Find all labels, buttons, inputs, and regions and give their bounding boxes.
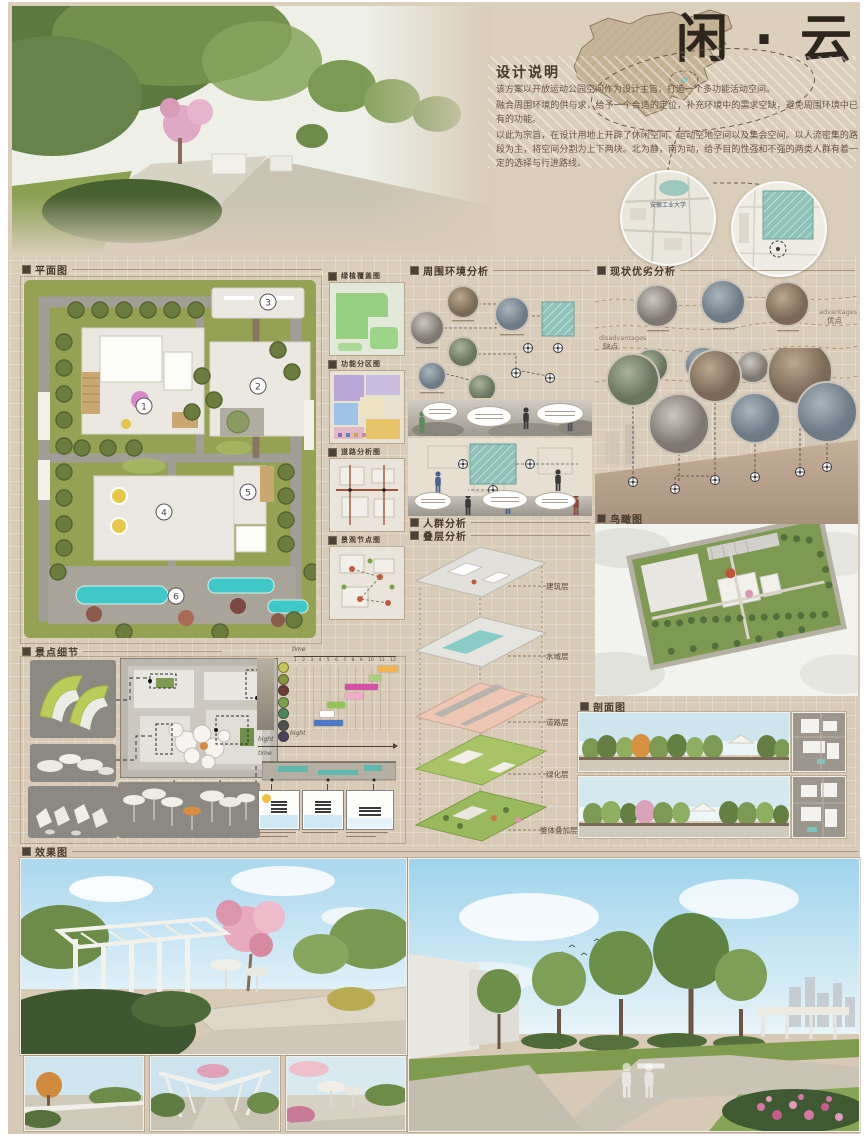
planting-photo-strip (257, 658, 274, 730)
mini-map-landscape-nodes (329, 546, 405, 620)
detail-umbrella-render (118, 782, 260, 838)
layer-green (416, 735, 546, 785)
section-header-crowd: 人群分析 (410, 516, 590, 528)
section-elevation-1 (578, 712, 790, 772)
time-tick: 12 (390, 658, 396, 663)
tree-species-dot (278, 708, 289, 719)
speech-bubble (422, 402, 458, 421)
site-square (542, 302, 574, 336)
render-pergola-scene (20, 858, 407, 1055)
caption-line (302, 832, 338, 833)
layer-label: 道路层 (546, 717, 569, 728)
svg-text:3: 3 (265, 299, 271, 309)
section-bullet-icon (328, 360, 337, 369)
section-rule (471, 535, 590, 536)
caption-line (346, 832, 388, 833)
section-bullet-icon (328, 448, 337, 457)
campus-map-drawing (622, 172, 714, 264)
tree-species-dot (278, 674, 289, 685)
tree-species-dot (278, 720, 289, 731)
caption-line (346, 836, 376, 837)
time-tick: 9 (360, 658, 363, 663)
aerial-view (595, 524, 858, 696)
time-tick: 5 (327, 658, 330, 663)
section-elevation-2 (578, 776, 790, 838)
svg-text:disadvantages: disadvantages (599, 334, 647, 342)
design-poster: 闲 · 云 设计说明 该方案以开放运动公园空间作为设计主旨，打造一个多功能活动空… (0, 0, 867, 1136)
section-bullet-icon (580, 702, 589, 711)
section-header-aerial: 鸟瞰图 (597, 512, 717, 524)
section-bullet-icon (597, 514, 606, 523)
section-header-mini-1: 绿植覆盖图 (328, 270, 404, 282)
arrowhead-icon (393, 743, 398, 749)
section-header-profile: 剖面图 (580, 700, 730, 712)
section-rule (493, 270, 590, 271)
crowd-photo-strip-1 (408, 400, 592, 436)
gabion-stack (271, 799, 287, 815)
render-park-path-scene (408, 858, 860, 1132)
bloom-bar (369, 675, 382, 681)
speech-bubble (414, 492, 452, 510)
tree-species-dot (278, 731, 289, 742)
water-diagram-2 (302, 790, 344, 830)
section-bullet-icon (22, 265, 31, 274)
environment-analysis (408, 278, 592, 398)
section-bullet-icon (410, 518, 419, 527)
section-header-swot: 现状优劣分析 (597, 264, 855, 276)
bloom-bar (320, 711, 335, 717)
section-bullet-icon (410, 531, 419, 540)
speech-bubble (536, 403, 584, 424)
water-level (348, 818, 392, 828)
bloom-bar (378, 666, 398, 672)
caption-line (258, 832, 296, 833)
crowd-site-band (408, 438, 592, 496)
layer-buildings (416, 547, 546, 597)
svg-text:4: 4 (161, 509, 167, 519)
tree-species-dot (278, 662, 289, 673)
time-tick: 3 (310, 658, 313, 663)
site-map-circle (731, 181, 827, 277)
bloom-bar-chart (296, 666, 396, 730)
speech-bubble (534, 492, 576, 510)
site-area-highlight (763, 191, 813, 239)
sun-icon (262, 794, 271, 803)
water-diagram-3 (346, 790, 394, 830)
time-tick: 4 (319, 658, 322, 663)
tree-species-dot (278, 685, 289, 696)
time-axis-line (294, 656, 396, 657)
svg-text:2: 2 (255, 383, 261, 393)
caption-line (258, 836, 288, 837)
render-thumbnail-3 (286, 1056, 406, 1131)
section-header-mini-3: 道路分析图 (328, 446, 404, 458)
water-level (304, 815, 342, 828)
mini-map-title: 道路分析图 (341, 447, 381, 457)
time-axis-ticks: 123456789101112 (294, 658, 396, 663)
svg-text:1: 1 (141, 403, 147, 413)
mini-map-title: 景观节点图 (341, 535, 381, 545)
bloom-bar (327, 702, 345, 708)
tree-species-column (278, 662, 289, 743)
section-title: 周围环境分析 (423, 263, 489, 278)
water-diagram-1 (258, 790, 300, 830)
section-rule (471, 522, 590, 523)
speech-bubble (482, 490, 528, 509)
section-rule (680, 270, 855, 271)
height-label-2: hight (258, 736, 273, 743)
section-header-plan: 平面图 (22, 263, 322, 275)
section-title: 效果图 (35, 844, 68, 859)
layer-label: 整体叠加层 (540, 825, 578, 836)
site-square (470, 444, 516, 484)
time-tick: 7 (343, 658, 346, 663)
facility-elevation (262, 758, 396, 784)
render-thumbnail-2 (150, 1056, 280, 1131)
section-rule (72, 269, 322, 270)
section-bullet-icon (328, 536, 337, 545)
campus-map-label: 安徽工业大学 (622, 200, 714, 209)
time-tick: 11 (379, 658, 385, 663)
bloom-bar (314, 720, 343, 726)
svg-text:5: 5 (245, 489, 251, 499)
svg-text:优点: 优点 (827, 315, 842, 325)
time-tick: 8 (352, 658, 355, 663)
section-header-environment: 周围环境分析 (410, 264, 590, 276)
bloom-bar (345, 693, 363, 699)
section-header-renders: 效果图 (22, 845, 858, 857)
crowd-photo-strip-2 (408, 496, 592, 516)
mini-map-function-zones (329, 370, 405, 444)
bloom-bar (345, 684, 378, 690)
section-bullet-icon (22, 847, 31, 856)
time-tick: 10 (368, 658, 374, 663)
section-bullet-icon (410, 266, 419, 275)
section-bullet-icon (328, 272, 337, 281)
time-axis-label: time (292, 646, 306, 653)
site-map-drawing (733, 183, 825, 275)
section-key-plan-2 (792, 776, 846, 838)
section-title: 叠层分析 (423, 528, 467, 543)
height-axis-label: hight (290, 730, 305, 737)
gabion-stack (359, 805, 381, 817)
svg-text:advantages: advantages (819, 308, 858, 316)
street-condition-photos (595, 348, 858, 528)
mini-map-title: 功能分区图 (341, 359, 381, 369)
water-level (260, 815, 298, 828)
section-key-plan-1 (792, 712, 846, 772)
section-rule (72, 851, 858, 852)
render-thumbnail-1 (24, 1056, 144, 1131)
mini-map-green-coverage (329, 282, 405, 356)
layer-label: 建筑层 (546, 581, 569, 592)
time-label-2: time (258, 750, 272, 757)
time-tick: 2 (302, 658, 305, 663)
layer-label: 水域层 (546, 651, 569, 662)
campus-map-circle: 安徽工业大学 (620, 170, 716, 266)
section-header-layers: 叠层分析 (410, 529, 590, 541)
time-tick: 6 (335, 658, 338, 663)
section-header-mini-4: 景观节点图 (328, 534, 404, 546)
gabion-stack (315, 799, 331, 815)
mini-map-road-analysis (329, 458, 405, 532)
layer-label: 绿化层 (546, 769, 569, 780)
layer-composite (416, 791, 546, 841)
layer-roads (416, 683, 546, 733)
speech-bubble (466, 406, 512, 427)
description-heading: 设计说明 (496, 62, 560, 82)
site-plan: 1 2 3 4 5 6 (24, 280, 316, 638)
park-avenue-photo (12, 6, 492, 254)
time-tick: 1 (294, 658, 297, 663)
time-arrow-line (258, 746, 396, 747)
layer-water (416, 617, 546, 667)
section-header-mini-2: 功能分区图 (328, 358, 404, 370)
svg-text:6: 6 (173, 593, 179, 603)
tree-species-dot (278, 697, 289, 708)
mini-map-title: 绿植覆盖图 (341, 271, 381, 281)
section-bullet-icon (597, 266, 606, 275)
section-title: 平面图 (35, 262, 68, 277)
